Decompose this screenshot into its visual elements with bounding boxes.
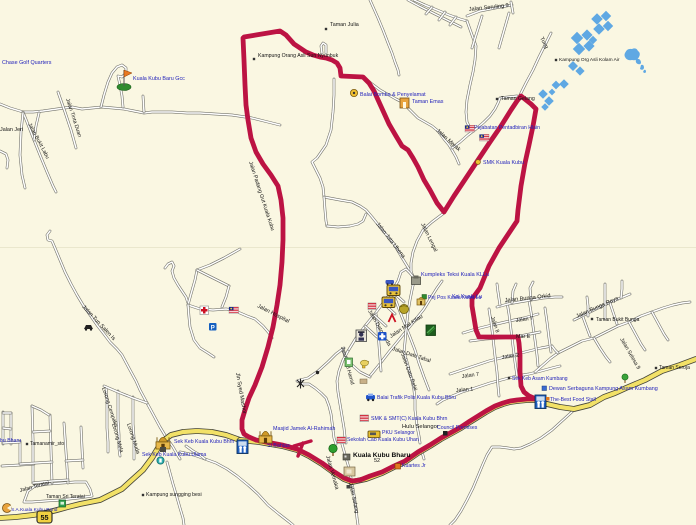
svg-text:Taman Julia: Taman Julia — [330, 22, 359, 28]
svg-text:Chase Golf Quarters: Chase Golf Quarters — [2, 60, 52, 66]
svg-text:bu Bharu: bu Bharu — [0, 438, 21, 444]
svg-text:Sl Bahias: Sl Bahias — [267, 443, 290, 449]
svg-text:Sek Keb Kuala Kubu Bhrn: Sek Keb Kuala Kubu Bhrn — [174, 439, 234, 445]
svg-text:Taman Gelang: Taman Gelang — [501, 96, 535, 102]
svg-text:Kampung Orang Asli Sun Nyunbuk: Kampung Orang Asli Sun Nyunbuk — [258, 53, 339, 59]
svg-text:P: P — [211, 325, 215, 331]
svg-text:Taman Emas: Taman Emas — [412, 99, 444, 105]
svg-text:Kampung sungging besi: Kampung sungging besi — [146, 492, 202, 498]
svg-text:Taman Seroja: Taman Seroja — [659, 365, 690, 371]
svg-text:Kuartes Jr: Kuartes Jr — [402, 463, 426, 469]
svg-text:Taman Bukit Bunga: Taman Bukit Bunga — [596, 317, 640, 323]
svg-text:SMK Kuala Kubu: SMK Kuala Kubu — [483, 160, 524, 166]
svg-text:Sek Keb Asam Kumbang: Sek Keb Asam Kumbang — [512, 376, 568, 382]
svg-text:Taman Sri Teratai: Taman Sri Teratai — [46, 494, 85, 500]
svg-text:Dewan Serbaguna Kampung Asam K: Dewan Serbaguna Kampung Asam Kumbang — [549, 386, 658, 392]
svg-text:Pej Pos Kuala Kubu Lu: Pej Pos Kuala Kubu Lu — [428, 295, 481, 301]
svg-text:PKU Selangor: PKU Selangor — [382, 430, 415, 436]
svg-text:Jalan Jeri: Jalan Jeri — [0, 127, 23, 133]
svg-text:Mar E: Mar E — [516, 334, 531, 340]
svg-text:52: 52 — [374, 458, 380, 464]
svg-text:Sekolah Cab Kuala Kubu Uhan: Sekolah Cab Kuala Kubu Uhan — [347, 437, 419, 443]
svg-text:Council Premises: Council Premises — [437, 425, 478, 431]
svg-text:Balai Trafik Polis Kuala Kubu: Balai Trafik Polis Kuala Kubu Bhru — [377, 395, 456, 401]
svg-text:Balai Bomba & Penyelamat: Balai Bomba & Penyelamat — [360, 92, 426, 98]
svg-text:SMK & SMT(C) Kuala Kubu Bhrn: SMK & SMT(C) Kuala Kubu Bhrn — [371, 416, 448, 422]
svg-text:55: 55 — [41, 513, 49, 522]
svg-text:Pejabatan Pentadbiran Hlain: Pejabatan Pentadbiran Hlain — [474, 125, 540, 131]
svg-text:Tamanamir_sto: Tamanamir_sto — [30, 441, 64, 447]
svg-text:Masjid Jamek Al-Rahimah: Masjid Jamek Al-Rahimah — [273, 426, 335, 432]
svg-text:Kampung Org Asli Kolam Air: Kampung Org Asli Kolam Air — [559, 57, 620, 63]
svg-text:Kuala Kubu Bharu: Kuala Kubu Bharu — [353, 452, 411, 459]
svg-text:Kuala Kubu Baru Gcc: Kuala Kubu Baru Gcc — [133, 76, 185, 82]
svg-text:The-Best Food Stall: The-Best Food Stall — [550, 397, 596, 403]
svg-text:Kumpleks Teksi Kuala KLLu: Kumpleks Teksi Kuala KLLu — [421, 272, 489, 278]
svg-text:Sek Keb Kuala Kubu Ulama: Sek Keb Kuala Kubu Ulama — [142, 452, 206, 458]
